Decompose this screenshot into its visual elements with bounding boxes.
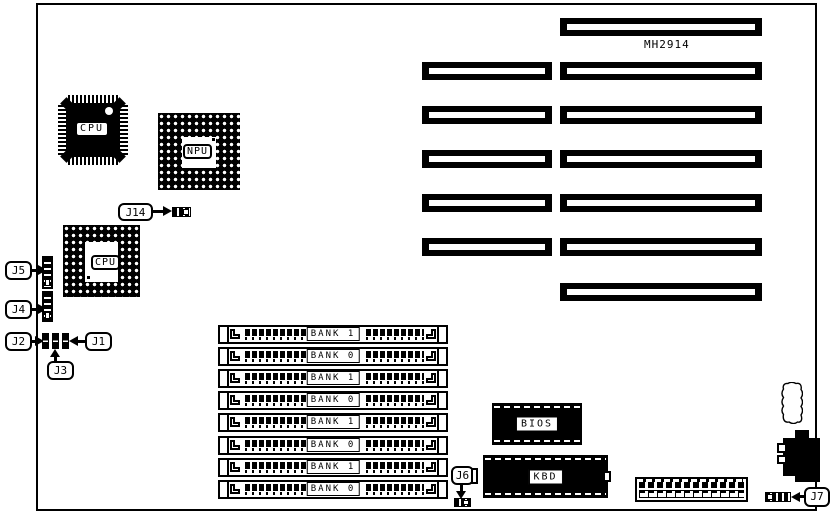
simm-end-cell: [220, 371, 229, 386]
slot-contact-stripe: [429, 156, 545, 162]
simm-end-cell: [220, 327, 229, 342]
simm-chips: [366, 373, 424, 384]
simm-clip-icon: [230, 351, 240, 361]
bank-label: BANK 0: [307, 349, 360, 363]
memory-bank-row: BANK 0: [218, 391, 448, 410]
simm-end-cell: [220, 349, 229, 364]
jumper-label-j7: J7: [804, 487, 830, 507]
simm-clip-icon: [426, 462, 436, 472]
j1-arrow-line: [77, 340, 86, 343]
cpu-qfp-label: CPU: [77, 123, 107, 135]
memory-bank-row: BANK 1: [218, 458, 448, 477]
kbd-right-tab: [603, 471, 611, 482]
simm-clip-icon: [230, 440, 240, 450]
power-connector-sockets: [639, 490, 744, 498]
expansion-slot-short: [422, 150, 552, 168]
bank-label: BANK 0: [307, 438, 360, 452]
simm-chips: [245, 329, 306, 340]
qfp-pins-right: [120, 105, 128, 155]
simm-end-cell: [220, 460, 229, 475]
simm-end-cell: [437, 415, 446, 430]
simm-chips: [245, 440, 306, 451]
memory-bank-row: BANK 0: [218, 436, 448, 455]
simm-clip-icon: [426, 351, 436, 361]
expansion-slot-long: [560, 283, 762, 301]
bank-label: BANK 1: [307, 371, 360, 385]
simm-clip-icon: [230, 462, 240, 472]
power-connector-pins: [639, 482, 744, 488]
expansion-slot-short: [422, 106, 552, 124]
expansion-slot-long: [560, 238, 762, 256]
simm-end-cell: [437, 460, 446, 475]
jumper-label-j14: J14: [118, 203, 153, 221]
kbd-label: KBD: [528, 469, 562, 484]
simm-clip-icon: [230, 373, 240, 383]
simm-chips: [245, 484, 306, 495]
expansion-slot-long: [560, 18, 762, 36]
expansion-slot-long: [560, 62, 762, 80]
bios-chip: BIOS: [492, 403, 582, 445]
pin1-mark-icon: [212, 138, 215, 141]
slot-contact-stripe: [429, 244, 545, 250]
jumper-block-j2: [42, 333, 49, 349]
memory-bank-row: BANK 1: [218, 325, 448, 344]
simm-clip-icon: [426, 373, 436, 383]
simm-end-cell: [437, 438, 446, 453]
expansion-slot-short: [422, 194, 552, 212]
j14-arrow-icon: [163, 206, 172, 216]
kbd-left-tab: [471, 468, 478, 484]
simm-clip-icon: [426, 484, 436, 494]
simm-clip-icon: [230, 329, 240, 339]
simm-clip-icon: [426, 329, 436, 339]
simm-clip-icon: [230, 417, 240, 427]
simm-chips: [366, 395, 424, 406]
bios-label: BIOS: [517, 418, 557, 431]
memory-bank-row: BANK 1: [218, 369, 448, 388]
expansion-slot-long: [560, 106, 762, 124]
bank-label: BANK 1: [307, 415, 360, 429]
slot-contact-stripe: [429, 68, 545, 74]
qfp-body: CPU: [66, 103, 120, 157]
simm-end-cell: [437, 393, 446, 408]
simm-clip-icon: [230, 484, 240, 494]
simm-chips: [366, 351, 424, 362]
bios-pins-bottom: [494, 440, 580, 442]
jumper-block-j3: [52, 333, 59, 349]
expansion-slot-short: [422, 238, 552, 256]
simm-chips: [366, 329, 424, 340]
j3-arrow-icon: [50, 349, 60, 357]
memory-bank-row: BANK 1: [218, 413, 448, 432]
simm-chips: [245, 395, 306, 406]
simm-end-cell: [220, 393, 229, 408]
jumper-block-j4: [42, 291, 53, 322]
jumper-block-j6: [454, 498, 471, 507]
din-connector-bottom-step: [795, 475, 820, 482]
din-connector: [783, 438, 820, 476]
kbd-chip: KBD: [483, 455, 608, 498]
expansion-slot-short: [422, 62, 552, 80]
bank-label: BANK 1: [307, 460, 360, 474]
jumper-block-j14: [172, 207, 191, 217]
slot-contact-stripe: [567, 156, 755, 162]
pin1-dot-icon: [105, 107, 113, 115]
bank-label: BANK 0: [307, 482, 360, 496]
simm-chips: [366, 440, 424, 451]
qfp-pins-bottom: [68, 157, 118, 165]
jumper-block-j7: [765, 492, 791, 502]
simm-end-cell: [220, 415, 229, 430]
jumper-label-j1: J1: [85, 332, 112, 351]
slot-contact-stripe: [429, 112, 545, 118]
simm-chips: [245, 417, 306, 428]
simm-end-cell: [437, 327, 446, 342]
npu-label: NPU: [183, 144, 212, 159]
din-tab-lower: [777, 455, 787, 464]
power-connector: [635, 477, 748, 502]
slot-contact-stripe: [567, 200, 755, 206]
memory-bank-row: BANK 0: [218, 347, 448, 366]
kbd-pins-top: [485, 458, 606, 460]
cpu-pga-chip: CPU: [63, 225, 140, 297]
qfp-pins-left: [58, 105, 66, 155]
bios-pins-top: [494, 406, 580, 408]
motherboard-diagram: MH2914 CPU NPU CPU J14 J5 J4: [0, 0, 833, 519]
simm-chips: [366, 484, 424, 495]
slot-contact-stripe: [567, 24, 755, 30]
simm-chips: [366, 417, 424, 428]
cpu-pga-label: CPU: [91, 255, 120, 270]
slot-contact-stripe: [567, 68, 755, 74]
kbd-pins-bottom: [485, 493, 606, 495]
expansion-slot-long: [560, 194, 762, 212]
simm-chips: [245, 462, 306, 473]
simm-end-cell: [220, 438, 229, 453]
crystal-outline: [781, 382, 803, 424]
expansion-slot-long: [560, 150, 762, 168]
memory-bank-row: BANK 0: [218, 480, 448, 499]
simm-clip-icon: [426, 395, 436, 405]
simm-chips: [245, 373, 306, 384]
slot-contact-stripe: [567, 289, 755, 295]
jumper-label-j2: J2: [5, 332, 32, 351]
slot-contact-stripe: [567, 112, 755, 118]
bank-label: BANK 1: [307, 327, 360, 341]
pin1-mark-icon: [87, 276, 90, 279]
model-label: MH2914: [644, 38, 690, 51]
simm-end-cell: [437, 371, 446, 386]
simm-end-cell: [437, 349, 446, 364]
j1-arrow-icon: [69, 336, 78, 346]
jumper-label-j5: J5: [5, 261, 32, 280]
simm-chips: [245, 351, 306, 362]
npu-chip: NPU: [158, 113, 240, 190]
slot-contact-stripe: [429, 200, 545, 206]
din-tab-upper: [777, 443, 787, 453]
simm-end-cell: [437, 482, 446, 497]
slot-contact-stripe: [567, 244, 755, 250]
simm-clip-icon: [426, 417, 436, 427]
simm-end-cell: [220, 482, 229, 497]
simm-clip-icon: [230, 395, 240, 405]
simm-chips: [366, 462, 424, 473]
bank-label: BANK 0: [307, 393, 360, 407]
jumper-label-j3: J3: [47, 361, 74, 380]
simm-clip-icon: [426, 440, 436, 450]
cpu-qfp-chip: CPU: [58, 95, 128, 165]
jumper-block-j1: [62, 333, 69, 349]
jumper-block-j5: [42, 256, 53, 289]
jumper-label-j4: J4: [5, 300, 32, 319]
qfp-pins-top: [68, 95, 118, 103]
